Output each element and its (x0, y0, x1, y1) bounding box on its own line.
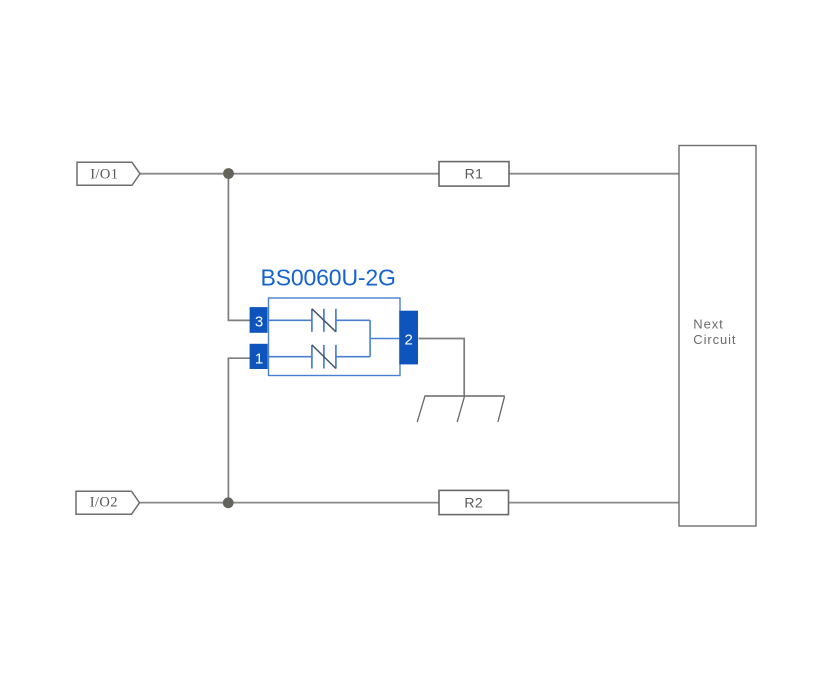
svg-text:Next: Next (693, 316, 723, 331)
svg-text:R2: R2 (464, 495, 483, 511)
svg-text:1: 1 (255, 350, 263, 367)
svg-text:I/O2: I/O2 (90, 495, 118, 511)
svg-text:Circuit: Circuit (693, 332, 736, 347)
svg-text:I/O1: I/O1 (90, 167, 118, 183)
svg-text:2: 2 (405, 332, 413, 349)
svg-text:R1: R1 (465, 166, 484, 182)
svg-text:3: 3 (255, 313, 263, 330)
svg-text:BS0060U-2G: BS0060U-2G (261, 265, 396, 291)
